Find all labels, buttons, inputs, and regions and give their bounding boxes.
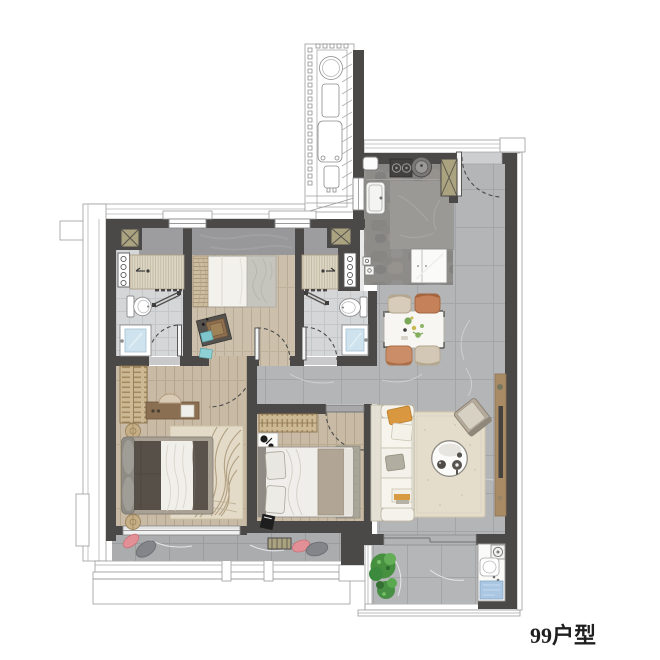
svg-text:99户型: 99户型 <box>530 623 596 648</box>
